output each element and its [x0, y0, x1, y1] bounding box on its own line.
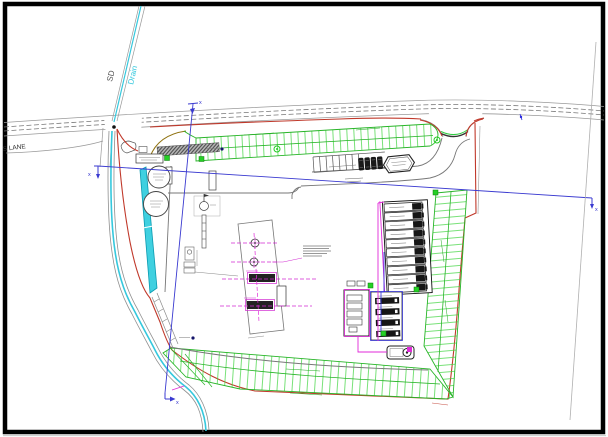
- tanker-parking: [371, 292, 403, 341]
- service-marker-magenta: [407, 347, 412, 352]
- label-box: [136, 154, 163, 163]
- tree-symbol-center: [436, 139, 438, 141]
- storage-tank-2: [144, 192, 169, 217]
- section-marker-x-right: x: [595, 207, 598, 213]
- mast: [202, 215, 206, 248]
- section-marker-x-left: x: [88, 172, 91, 178]
- tree-symbol-center: [276, 148, 278, 150]
- site-plan-drawing: SD Drain S LANE: [0, 0, 608, 437]
- weighbridge-office: [277, 286, 286, 306]
- warehouse-bays: [380, 199, 432, 296]
- section-marker-x-top: x: [199, 100, 202, 106]
- section-marker-x-bottom: x: [176, 400, 179, 406]
- junction-box: [139, 147, 147, 153]
- shelter-building: [383, 154, 415, 173]
- site-plan-screenshot: SD Drain S LANE: [0, 0, 608, 437]
- culvert-node: [112, 125, 116, 129]
